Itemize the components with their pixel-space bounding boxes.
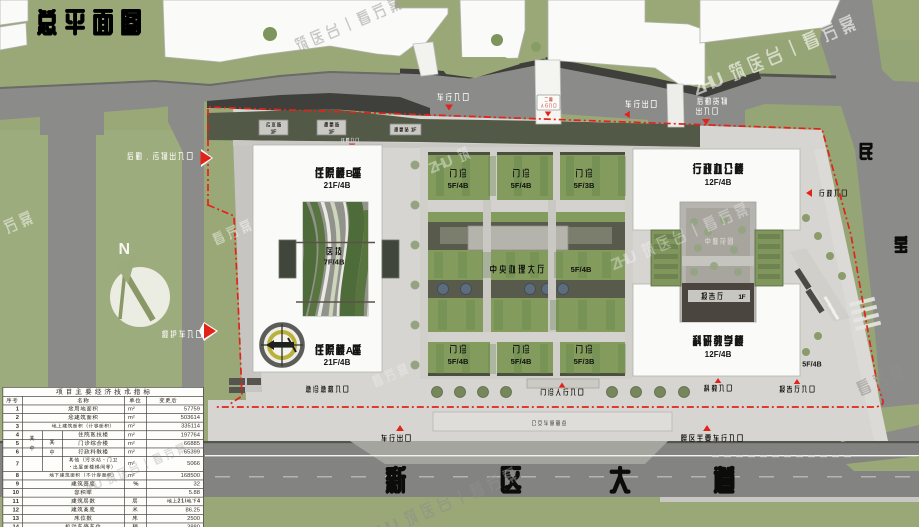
svg-text:65399: 65399 (184, 450, 200, 456)
svg-text:503614: 503614 (181, 415, 201, 421)
svg-text:21F/4B: 21F/4B (324, 181, 351, 190)
svg-text:21F/4B: 21F/4B (324, 358, 351, 367)
svg-text:B: B (346, 168, 354, 180)
svg-text:13: 13 (13, 516, 20, 522)
svg-text:2500: 2500 (187, 516, 200, 522)
svg-text:%: % (133, 482, 138, 488)
svg-text:1F: 1F (411, 127, 417, 133)
svg-text:1F: 1F (270, 129, 277, 135)
svg-text:4: 4 (197, 499, 200, 505)
svg-text:10: 10 (13, 490, 19, 496)
svg-text:12: 12 (13, 507, 19, 513)
svg-text:·: · (70, 465, 72, 471)
svg-text:5.88: 5.88 (189, 490, 200, 496)
svg-text:57759: 57759 (184, 407, 200, 413)
svg-text:N: N (119, 241, 131, 258)
svg-text:5F/4B: 5F/4B (511, 181, 532, 190)
svg-text:32: 32 (194, 482, 200, 488)
svg-text:5F/3B: 5F/3B (574, 181, 595, 190)
svg-text:m²: m² (128, 424, 135, 430)
svg-text:m²: m² (128, 407, 135, 413)
svg-text:m²: m² (128, 415, 135, 421)
svg-text:5F/3B: 5F/3B (574, 357, 595, 366)
svg-text:197764: 197764 (181, 432, 201, 438)
svg-text:5F/4B: 5F/4B (571, 265, 592, 274)
svg-text:1F: 1F (738, 294, 745, 301)
svg-text:1F: 1F (328, 129, 335, 135)
svg-text:m²: m² (128, 441, 135, 447)
svg-text:168500: 168500 (181, 473, 200, 479)
svg-text:A: A (346, 345, 354, 357)
svg-text:m²: m² (128, 450, 135, 456)
svg-text:5F/4B: 5F/4B (448, 357, 469, 366)
svg-text:5F/4B: 5F/4B (802, 362, 821, 369)
svg-text:12F/4B: 12F/4B (705, 178, 732, 187)
svg-text:2: 2 (16, 415, 19, 421)
svg-text:12F/4B: 12F/4B (705, 350, 732, 359)
svg-text:335114: 335114 (181, 424, 201, 430)
svg-text:m²: m² (128, 432, 135, 438)
svg-text:7: 7 (16, 461, 19, 467)
svg-text:5F/4B: 5F/4B (511, 357, 532, 366)
svg-text:86.25: 86.25 (185, 507, 200, 513)
svg-text:66885: 66885 (184, 441, 200, 447)
svg-text:21/: 21/ (178, 499, 187, 505)
svg-text:7F/4B: 7F/4B (324, 258, 345, 267)
svg-text:11: 11 (13, 499, 20, 505)
svg-text:5066: 5066 (187, 461, 200, 467)
svg-text:5F/4B: 5F/4B (448, 181, 469, 190)
